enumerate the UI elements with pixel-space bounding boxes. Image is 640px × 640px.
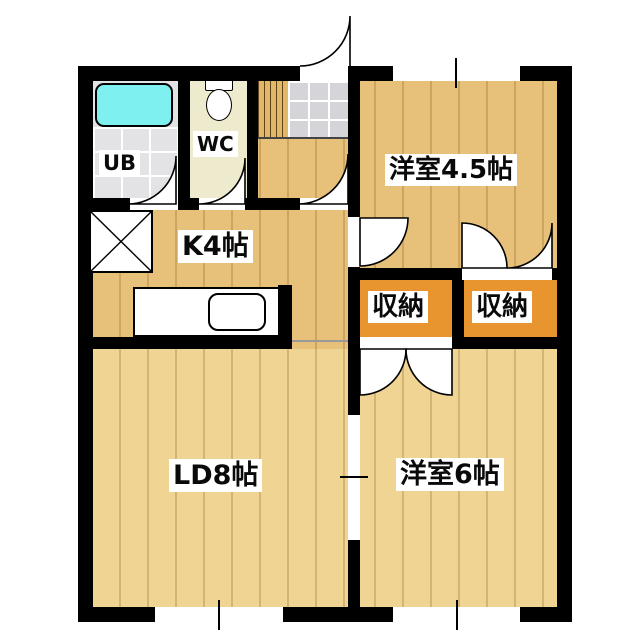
floor-plan: UB WC K4帖 洋室4.5帖 収納 収納 LD8帖 洋室6帖 <box>0 0 640 640</box>
closet-45-doorway <box>462 268 552 280</box>
wc-doorway <box>199 198 245 210</box>
label-bedroom-6: 洋室6帖 <box>396 458 504 491</box>
label-wc: WC <box>193 131 238 157</box>
wall-ub-wc <box>178 81 190 198</box>
ub-doorway <box>130 198 178 210</box>
wall-outer-right <box>557 66 572 622</box>
window-tick-bedroom6 <box>456 600 458 630</box>
wall-wc-hall <box>247 81 258 198</box>
wall-counter-stub <box>278 285 292 349</box>
hall-kitchen-doorway <box>300 198 348 210</box>
wall-kitchen-living <box>78 337 292 349</box>
label-storage-right: 収納 <box>472 291 532 323</box>
label-storage-left: 収納 <box>368 291 428 323</box>
label-living-dining: LD8帖 <box>169 459 262 492</box>
label-kitchen: K4帖 <box>178 230 253 263</box>
entrance-doorway <box>300 66 348 81</box>
bathtub-icon <box>95 83 173 127</box>
window-tick-top <box>455 58 457 88</box>
genkan-edge-line <box>258 137 348 139</box>
window-tick-living <box>218 600 220 630</box>
kitchen-living-boundary-line <box>292 340 348 342</box>
entrance-door-arc-icon <box>300 16 350 66</box>
label-unit-bath: UB <box>99 150 140 177</box>
opening-tick-living-bedroom6 <box>340 476 368 478</box>
kitchen-sink-icon <box>208 293 266 331</box>
toilet-bowl-icon <box>206 89 232 121</box>
closet-6-doorway <box>360 337 452 349</box>
bedroom45-doorway <box>348 217 360 267</box>
entrance-steps <box>258 81 288 138</box>
genkan-tile <box>288 81 348 138</box>
label-bedroom-45: 洋室4.5帖 <box>385 154 517 186</box>
